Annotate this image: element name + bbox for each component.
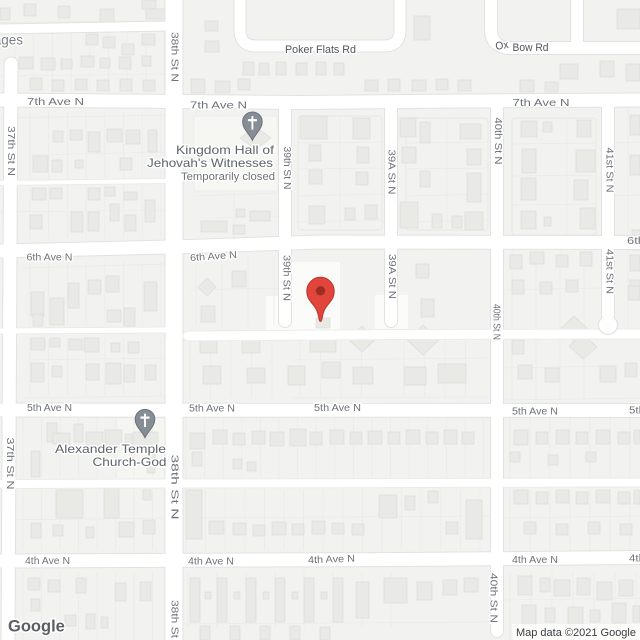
svg-text:Church-God: Church-God	[93, 455, 167, 469]
svg-text:39th St N: 39th St N	[280, 255, 291, 301]
svg-text:37th St N: 37th St N	[4, 438, 15, 490]
svg-text:7th Ave N: 7th Ave N	[27, 97, 84, 108]
svg-text:5th: 5th	[629, 405, 640, 416]
svg-text:Bow Rd: Bow Rd	[513, 42, 549, 54]
svg-text:4th Ave N: 4th Ave N	[25, 556, 70, 567]
svg-text:40th St N: 40th St N	[490, 304, 501, 340]
svg-text:Google: Google	[8, 618, 65, 636]
svg-text:4th Ave N: 4th Ave N	[188, 556, 234, 567]
svg-text:6th: 6th	[627, 236, 640, 247]
svg-text:Map data ©2021 Google: Map data ©2021 Google	[516, 627, 636, 639]
svg-text:41st St N: 41st St N	[603, 148, 614, 193]
svg-text:5th Ave N: 5th Ave N	[27, 403, 72, 414]
svg-text:Ox: Ox	[495, 39, 510, 53]
svg-text:ages: ages	[0, 33, 23, 48]
svg-text:Jehovah's Witnesses: Jehovah's Witnesses	[147, 156, 273, 170]
svg-text:Poker Flats Rd: Poker Flats Rd	[285, 44, 356, 56]
svg-text:5th Ave N: 5th Ave N	[512, 407, 558, 418]
svg-text:40th St N: 40th St N	[492, 118, 503, 165]
svg-text:38th St N: 38th St N	[168, 455, 179, 520]
svg-text:37th St N: 37th St N	[5, 126, 16, 176]
svg-text:Kingdom Hall of: Kingdom Hall of	[176, 143, 275, 157]
svg-text:41st St N: 41st St N	[603, 249, 614, 294]
svg-text:7th Ave N: 7th Ave N	[190, 100, 247, 111]
svg-text:5th Ave N: 5th Ave N	[314, 403, 361, 414]
svg-text:5th Ave N: 5th Ave N	[189, 403, 235, 414]
svg-text:6th Ave N: 6th Ave N	[27, 252, 73, 263]
svg-text:39A St N: 39A St N	[386, 254, 397, 299]
svg-text:Alexander Temple: Alexander Temple	[55, 442, 166, 456]
svg-text:40th St N: 40th St N	[487, 573, 498, 623]
svg-text:4th Ave N: 4th Ave N	[512, 555, 558, 566]
svg-text:39A St N: 39A St N	[385, 150, 396, 195]
svg-text:4th: 4th	[629, 553, 640, 564]
svg-text:4th Ave N: 4th Ave N	[308, 554, 355, 567]
svg-text:7th Ave N: 7th Ave N	[513, 98, 570, 109]
svg-text:38th St N: 38th St N	[168, 600, 179, 640]
svg-text:Temporarily closed: Temporarily closed	[181, 171, 275, 183]
svg-text:38th St N: 38th St N	[168, 32, 179, 82]
svg-text:39th St N: 39th St N	[281, 147, 292, 190]
